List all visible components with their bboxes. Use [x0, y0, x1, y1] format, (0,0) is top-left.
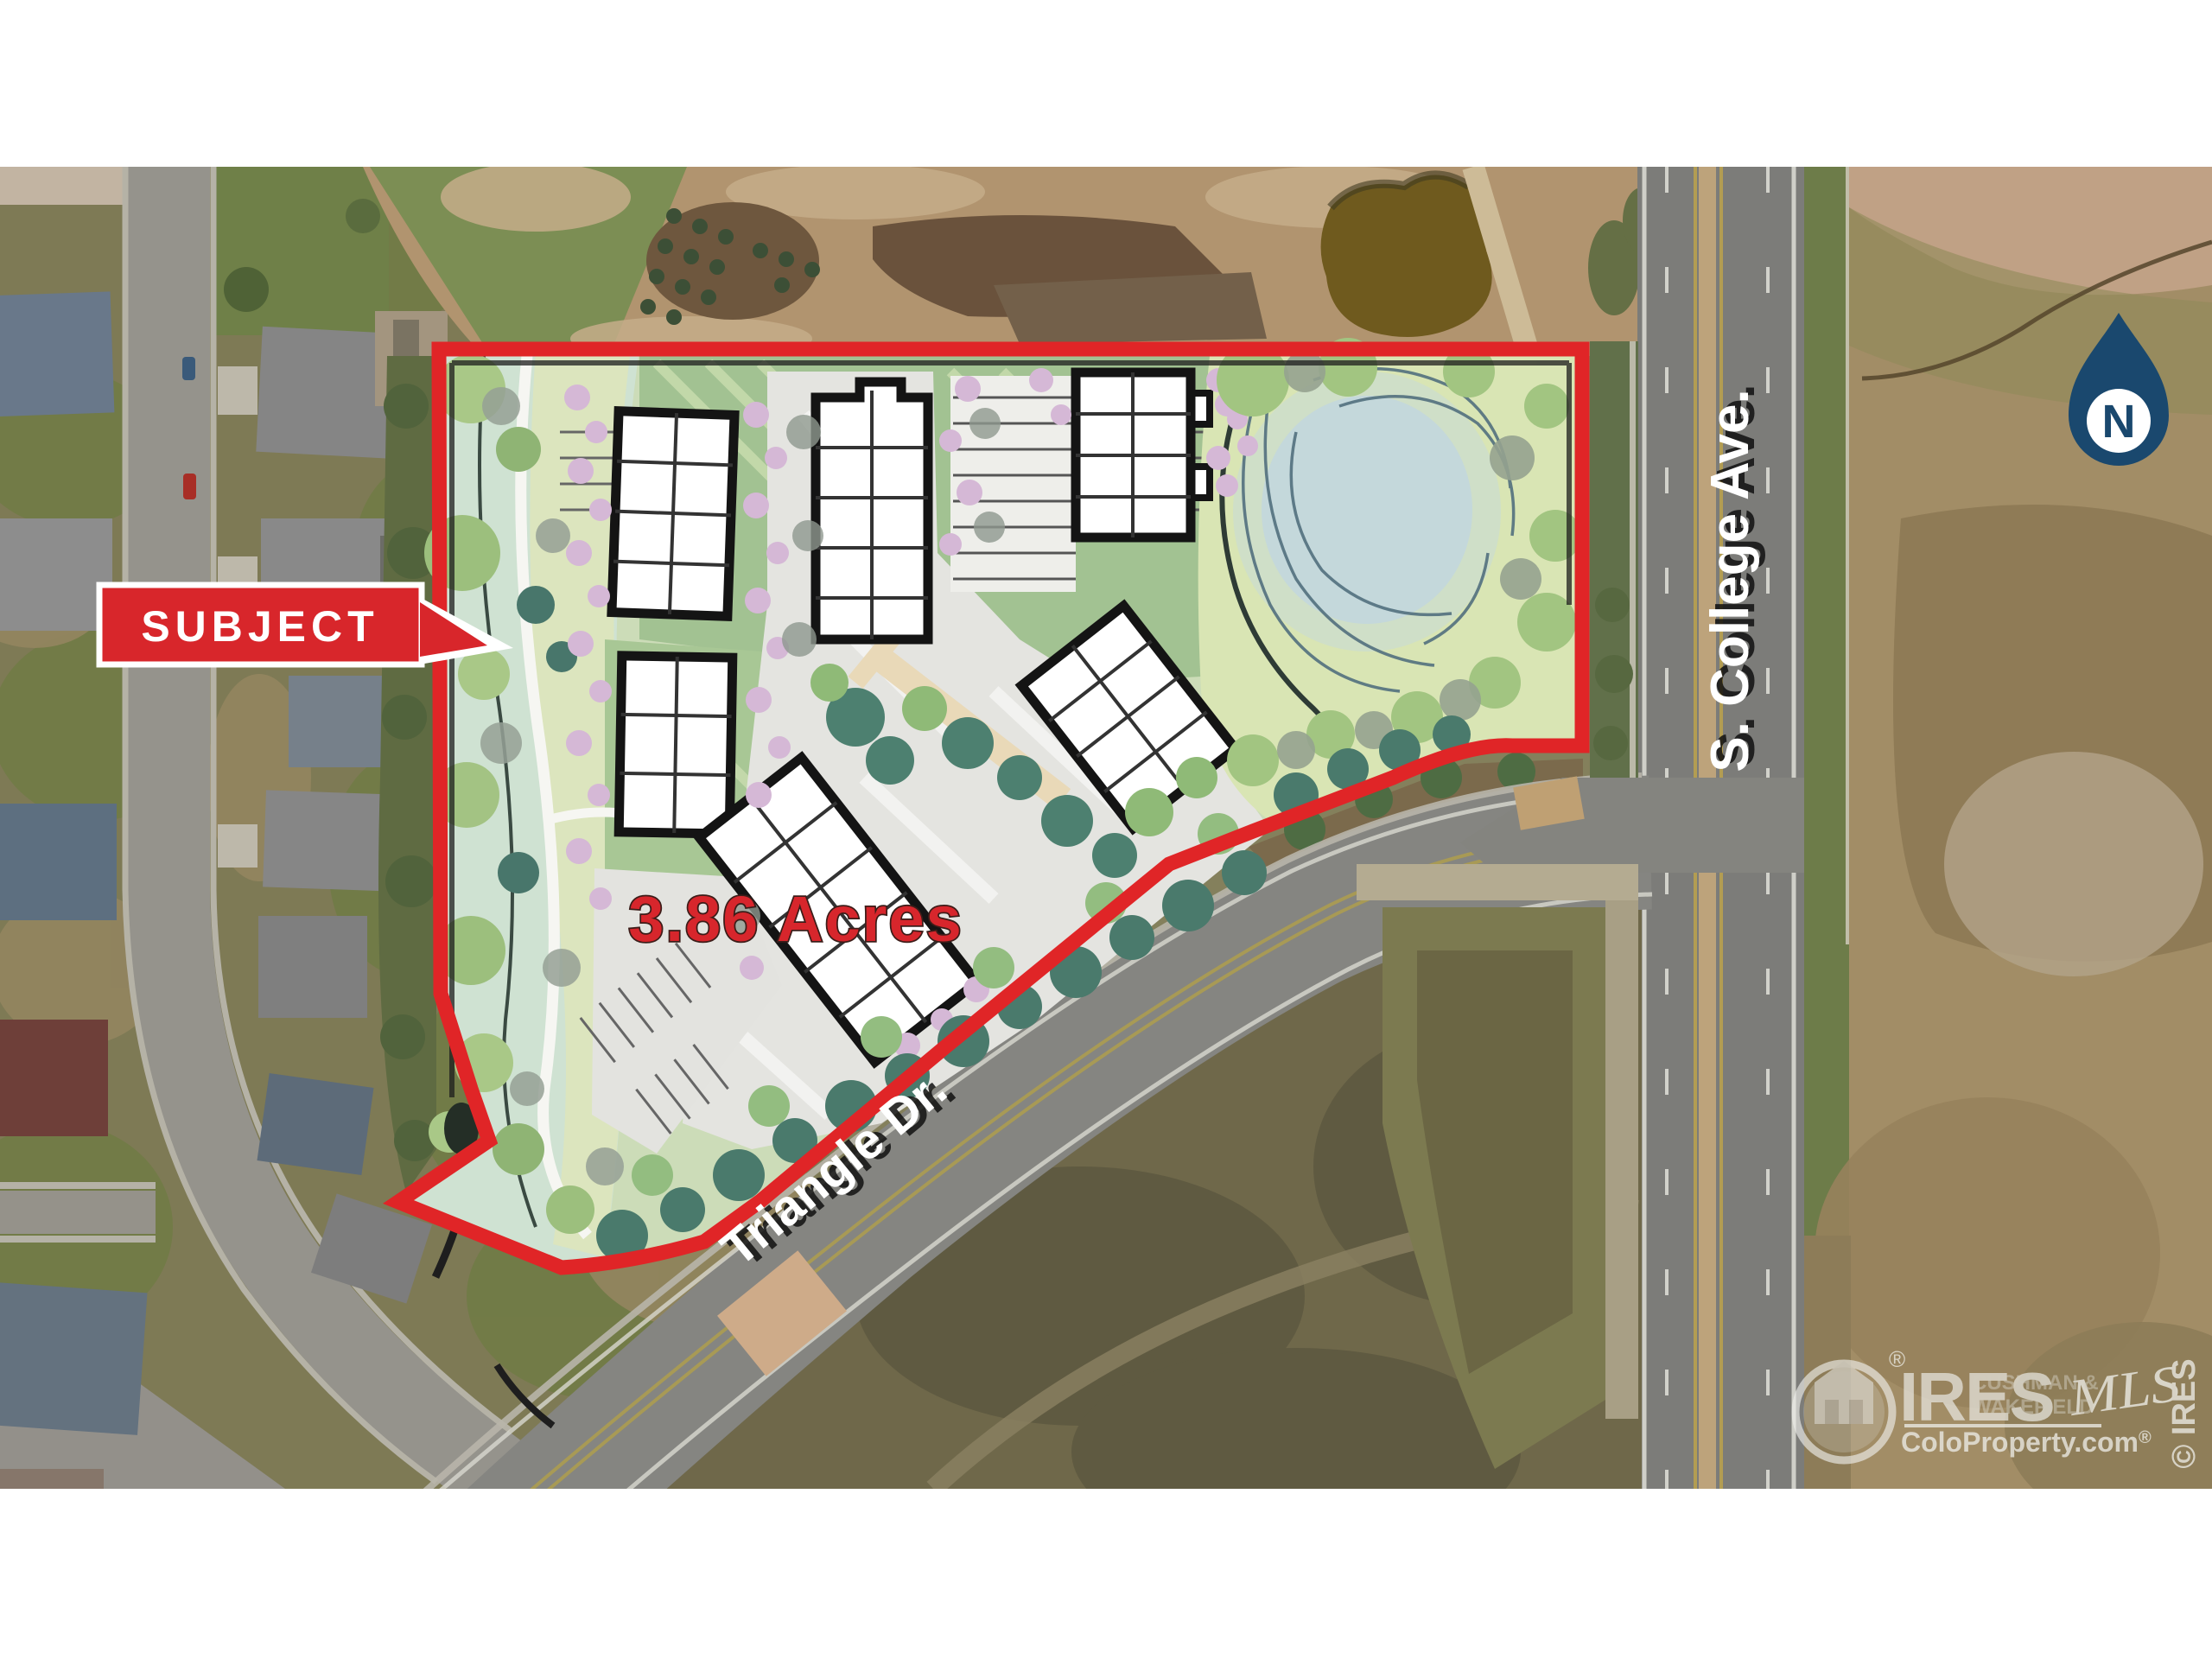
svg-text:S. College Ave.: S. College Ave.: [1700, 389, 1760, 772]
svg-text:3.86 Acres: 3.86 Acres: [628, 883, 963, 955]
svg-text:© IRES: © IRES: [2166, 1358, 2202, 1468]
svg-text:WAKEFIELD: WAKEFIELD: [1972, 1395, 2094, 1419]
svg-text:SUBJECT: SUBJECT: [141, 602, 378, 651]
svg-text:CUSHMAN &: CUSHMAN &: [1972, 1371, 2099, 1395]
svg-text:ColoProperty.com®: ColoProperty.com®: [1901, 1427, 2152, 1458]
svg-text:N: N: [2102, 396, 2136, 448]
svg-text:®: ®: [1889, 1346, 1905, 1372]
